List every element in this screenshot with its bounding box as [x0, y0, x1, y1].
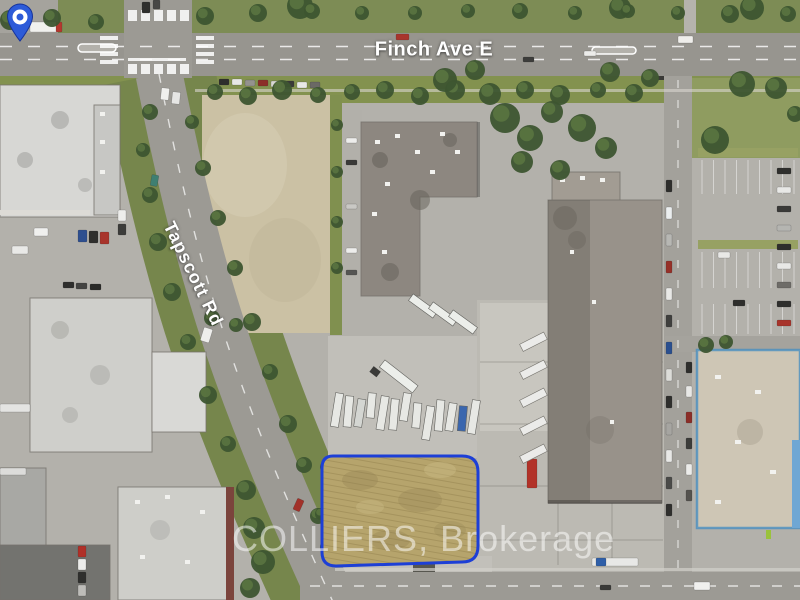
tree-icon [569, 7, 577, 15]
vehicle [0, 468, 26, 475]
tree-icon [767, 79, 779, 91]
tree-icon [782, 7, 791, 16]
tree-icon [592, 83, 601, 92]
vehicle [346, 204, 357, 209]
tree-icon [264, 365, 273, 374]
vehicle [718, 252, 730, 258]
tree-icon [165, 284, 175, 294]
vehicle [171, 92, 180, 105]
vehicle [694, 582, 710, 590]
brokerage-watermark: COLLIERS, Brokerage [232, 518, 615, 560]
tree-icon [413, 88, 423, 98]
vehicle [686, 464, 692, 475]
vehicle [777, 225, 791, 231]
vehicle [777, 301, 791, 307]
vehicle [346, 138, 357, 143]
vehicle [142, 2, 150, 13]
vehicle [733, 300, 745, 306]
vehicle [100, 232, 109, 244]
tree-icon [356, 7, 364, 15]
vehicle [777, 263, 791, 269]
tree-icon [332, 167, 339, 174]
tree-icon [298, 458, 307, 467]
tree-icon [251, 5, 261, 15]
tree-icon [230, 319, 238, 327]
tree-icon [704, 128, 719, 143]
aerial-photo [0, 0, 800, 600]
tree-icon [346, 85, 355, 94]
vehicle [523, 57, 534, 62]
tree-icon [552, 87, 563, 98]
tree-icon [481, 85, 493, 97]
vehicle [118, 210, 126, 221]
tree-icon [90, 15, 99, 24]
tree-icon [238, 482, 249, 493]
vehicle [666, 261, 672, 273]
vehicle [118, 224, 126, 235]
tree-icon [514, 4, 523, 13]
tree-icon [201, 387, 211, 397]
vehicle [78, 572, 86, 583]
tree-icon [241, 88, 251, 98]
vehicle [686, 412, 692, 423]
tree-icon [520, 127, 534, 141]
tree-icon [467, 62, 478, 73]
vehicle [78, 230, 87, 242]
tree-icon [789, 107, 798, 116]
tree-icon [197, 161, 206, 170]
tree-icon [312, 88, 321, 97]
vehicle [777, 320, 791, 326]
vehicle [678, 36, 693, 43]
tree-icon [435, 70, 448, 83]
street-label-finch: Finch Ave E [375, 39, 494, 62]
vehicle [527, 459, 537, 488]
vehicle [666, 234, 672, 246]
vehicle [12, 246, 28, 254]
vehicle [0, 404, 30, 412]
tree-icon [643, 70, 653, 80]
vehicle [584, 51, 596, 56]
vehicle [777, 187, 791, 193]
vehicle [34, 228, 48, 236]
tree-icon [245, 314, 255, 324]
vehicle [160, 88, 169, 101]
tree-icon [332, 217, 339, 224]
vehicle [245, 80, 255, 86]
location-pin-icon [0, 0, 40, 48]
tree-icon [306, 4, 315, 13]
vehicle [90, 284, 101, 290]
tree-icon [597, 139, 609, 151]
tree-icon [281, 416, 291, 426]
tree-icon [723, 6, 733, 16]
tree-icon [229, 261, 238, 270]
vehicle [78, 559, 86, 570]
vehicle [777, 282, 791, 288]
south-road [300, 572, 800, 600]
vehicle [686, 362, 692, 373]
vehicle [666, 369, 672, 381]
tree-icon [182, 335, 191, 344]
tree-icon [151, 234, 161, 244]
tree-icon [186, 116, 194, 124]
aerial-map: COLLIERS, Brokerage Finch Ave E Tapscott… [0, 0, 800, 600]
tree-icon [672, 7, 680, 15]
vehicle [666, 450, 672, 462]
vehicle [686, 386, 692, 397]
tree-icon [212, 211, 221, 220]
vehicle [346, 248, 357, 253]
vehicle [666, 180, 672, 192]
tree-icon [543, 103, 555, 115]
tree-icon [332, 120, 339, 127]
tree-icon [513, 153, 525, 165]
vehicle [76, 283, 87, 289]
vehicle [297, 82, 307, 88]
vehicle [686, 490, 692, 501]
tree-icon [45, 10, 55, 20]
vehicle [666, 504, 672, 516]
vehicle [346, 270, 357, 275]
tree-icon [552, 162, 563, 173]
vehicle [666, 315, 672, 327]
vehicle [666, 288, 672, 300]
tree-icon [493, 105, 510, 122]
vehicle [686, 438, 692, 449]
tree-icon [144, 188, 153, 197]
tree-icon [462, 5, 470, 13]
tree-icon [518, 82, 528, 92]
vehicle [666, 207, 672, 219]
vehicle [666, 423, 672, 435]
vehicle [666, 396, 672, 408]
tree-icon [332, 263, 339, 270]
vehicle [777, 168, 791, 174]
tree-icon [602, 64, 613, 75]
building [118, 487, 230, 600]
tree-icon [732, 73, 746, 87]
vehicle [666, 477, 672, 489]
vehicle [232, 79, 242, 85]
tree-icon [720, 336, 728, 344]
tree-icon [627, 85, 637, 95]
tree-icon [209, 85, 218, 94]
tree-icon [622, 5, 630, 13]
building [0, 545, 110, 600]
vehicle [78, 585, 86, 596]
tree-icon [198, 8, 208, 18]
tree-icon [378, 82, 388, 92]
vehicle [78, 546, 86, 557]
vehicle [258, 80, 268, 86]
vehicle [219, 79, 229, 85]
vehicle [600, 585, 611, 590]
vehicle [777, 206, 791, 212]
vehicle [346, 160, 357, 165]
vehicle [777, 244, 791, 250]
tree-icon [137, 144, 145, 152]
tree-icon [144, 105, 153, 114]
vehicle [666, 342, 672, 354]
tree-icon [242, 580, 253, 591]
vehicle [153, 0, 160, 9]
tree-icon [409, 7, 417, 15]
tree-icon [222, 437, 231, 446]
tree-icon [274, 82, 285, 93]
tree-icon [571, 116, 586, 131]
vehicle [63, 282, 74, 288]
tree-icon [700, 338, 709, 347]
vehicle [89, 231, 98, 243]
